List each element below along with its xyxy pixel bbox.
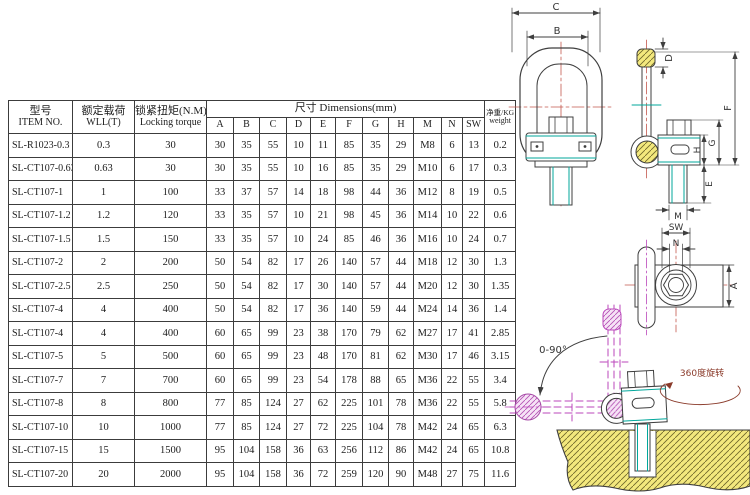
pivot-pin-section xyxy=(636,141,658,163)
table-cell: 63 xyxy=(311,439,336,463)
table-cell: 170 xyxy=(336,322,363,346)
col-header-dim-m: M xyxy=(414,118,442,134)
table-cell: 48 xyxy=(311,345,336,369)
table-cell: 250 xyxy=(135,275,207,299)
table-cell: 21 xyxy=(311,204,336,228)
table-cell: SL-CT107-8 xyxy=(9,392,73,416)
table-cell: 14 xyxy=(287,181,311,205)
table-cell: 5 xyxy=(73,345,135,369)
col-header-dim-a: A xyxy=(207,118,234,134)
spec-table-body: SL-R1023-0.30.3303035551011853529M86130.… xyxy=(9,134,516,487)
table-cell: 99 xyxy=(260,369,287,393)
table-row: SL-CT107-2220050548217261405744M1812301.… xyxy=(9,251,516,275)
table-cell: M8 xyxy=(414,134,442,158)
table-cell: 1 xyxy=(73,181,135,205)
table-cell: 4 xyxy=(73,298,135,322)
table-cell: 57 xyxy=(363,275,389,299)
table-cell: 77 xyxy=(207,392,234,416)
table-cell: 700 xyxy=(135,369,207,393)
table-cell: 17 xyxy=(442,345,463,369)
table-row: SL-CT107-4440050548217361405944M2414361.… xyxy=(9,298,516,322)
table-cell: 30 xyxy=(135,134,207,158)
table-cell: 33 xyxy=(207,204,234,228)
table-cell: 10 xyxy=(442,228,463,252)
table-cell: 37 xyxy=(234,181,260,205)
catalog-page: 型号 ITEM NO. 额定载荷 WLL(T) 锁紧扭矩(N.M) Lockin… xyxy=(0,0,750,495)
dim-label-d: D xyxy=(664,54,675,62)
table-cell: 65 xyxy=(234,369,260,393)
col-header-dim-c: C xyxy=(260,118,287,134)
table-cell: 82 xyxy=(260,275,287,299)
table-cell: 85 xyxy=(234,416,260,440)
table-cell: SL-CT107-1 xyxy=(9,181,73,205)
table-cell: 22 xyxy=(463,204,485,228)
table-cell: 60 xyxy=(207,345,234,369)
table-cell: 65 xyxy=(234,322,260,346)
table-row: SL-CT107-7770060659923541788865M3622553.… xyxy=(9,369,516,393)
table-cell: 27 xyxy=(287,392,311,416)
table-cell: SL-CT107-1.5 xyxy=(9,228,73,252)
table-cell: 98 xyxy=(336,181,363,205)
table-cell: 36 xyxy=(287,463,311,487)
table-cell: M36 xyxy=(414,392,442,416)
table-cell: 400 xyxy=(135,322,207,346)
table-cell: M24 xyxy=(414,298,442,322)
table-cell: 800 xyxy=(135,392,207,416)
table-cell: SL-CT107-0.63 xyxy=(9,157,73,181)
table-cell: 60 xyxy=(207,322,234,346)
table-cell: 19 xyxy=(463,181,485,205)
table-cell: 82 xyxy=(260,251,287,275)
table-cell: 62 xyxy=(389,322,414,346)
table-cell: 10 xyxy=(287,134,311,158)
table-cell: 140 xyxy=(336,275,363,299)
table-cell: 55 xyxy=(463,392,485,416)
col-header-wll-en: WLL(T) xyxy=(73,118,134,129)
table-cell: 44 xyxy=(389,251,414,275)
ring-bar-section xyxy=(637,49,655,67)
table-row: SL-CT107-1515150095104158366325611286M42… xyxy=(9,439,516,463)
table-cell: 88 xyxy=(363,369,389,393)
technical-drawing: C B xyxy=(495,0,750,495)
table-row: SL-CT107-1.51.51503335571024854636M16102… xyxy=(9,228,516,252)
table-cell: 24 xyxy=(442,439,463,463)
table-row: SL-CT107-1.21.21203335571021984536M14102… xyxy=(9,204,516,228)
table-cell: M27 xyxy=(414,322,442,346)
rotation-label: 360度旋转 xyxy=(680,367,724,379)
table-row: SL-CT107-888007785124276222510178M362255… xyxy=(9,392,516,416)
col-header-torque-en: Locking torque xyxy=(135,118,206,129)
table-cell: 27 xyxy=(442,463,463,487)
table-cell: 35 xyxy=(234,204,260,228)
lock-pin xyxy=(671,145,689,154)
nut xyxy=(628,370,655,387)
table-cell: 54 xyxy=(234,298,260,322)
table-cell: 36 xyxy=(389,228,414,252)
table-cell: 78 xyxy=(389,392,414,416)
table-cell: 124 xyxy=(260,416,287,440)
dim-label-h: H xyxy=(693,147,703,154)
table-cell: 46 xyxy=(463,345,485,369)
col-header-dim-f: F xyxy=(336,118,363,134)
table-cell: 10 xyxy=(287,204,311,228)
table-cell: 50 xyxy=(207,275,234,299)
washer xyxy=(535,161,587,167)
table-cell: SL-CT107-2.5 xyxy=(9,275,73,299)
table-cell: 225 xyxy=(336,416,363,440)
table-cell: 30 xyxy=(207,134,234,158)
table-cell: 50 xyxy=(207,298,234,322)
table-row: SL-CT107-0.630.63303035551016853529M1061… xyxy=(9,157,516,181)
table-cell: 57 xyxy=(260,228,287,252)
table-row: SL-CT107-4440060659923381707962M2717412.… xyxy=(9,322,516,346)
dim-label-f: F xyxy=(723,105,734,111)
table-cell: M10 xyxy=(414,157,442,181)
table-cell: 27 xyxy=(287,416,311,440)
table-cell: 170 xyxy=(336,345,363,369)
dim-label-b: B xyxy=(554,26,561,37)
table-cell: 104 xyxy=(363,416,389,440)
table-cell: 29 xyxy=(389,134,414,158)
table-row: SL-CT107-2.52.525050548217301405744M2012… xyxy=(9,275,516,299)
nut xyxy=(667,120,691,135)
col-header-dim-b: B xyxy=(234,118,260,134)
table-cell: M20 xyxy=(414,275,442,299)
dim-label-m: M xyxy=(674,212,682,222)
table-cell: 38 xyxy=(311,322,336,346)
table-cell: M42 xyxy=(414,439,442,463)
table-cell: 10 xyxy=(287,228,311,252)
table-cell: 26 xyxy=(311,251,336,275)
side-view-drawing: D H E G F M xyxy=(631,38,739,222)
table-cell: 65 xyxy=(463,416,485,440)
col-header-item-en: ITEM NO. xyxy=(9,118,72,129)
table-cell: 54 xyxy=(311,369,336,393)
table-cell: 17 xyxy=(287,251,311,275)
table-cell: 45 xyxy=(363,204,389,228)
table-cell: 81 xyxy=(363,345,389,369)
table-cell: 65 xyxy=(389,369,414,393)
table-cell: 2000 xyxy=(135,463,207,487)
table-cell: SL-CT107-1.2 xyxy=(9,204,73,228)
table-cell: 55 xyxy=(260,157,287,181)
table-cell: 120 xyxy=(135,204,207,228)
table-cell: 1.2 xyxy=(73,204,135,228)
table-cell: 98 xyxy=(336,204,363,228)
table-cell: 17 xyxy=(442,322,463,346)
table-cell: 85 xyxy=(336,157,363,181)
table-cell: 55 xyxy=(463,369,485,393)
table-cell: SL-CT107-2 xyxy=(9,251,73,275)
table-cell: M16 xyxy=(414,228,442,252)
table-cell: 30 xyxy=(207,157,234,181)
dim-label-sw: SW xyxy=(669,223,684,233)
table-cell: 8 xyxy=(442,181,463,205)
col-header-torque: 锁紧扭矩(N.M) Locking torque xyxy=(135,101,207,134)
front-view-drawing: C B xyxy=(509,2,613,206)
table-cell: 62 xyxy=(311,392,336,416)
table-cell: 0.63 xyxy=(73,157,135,181)
table-cell: 1000 xyxy=(135,416,207,440)
table-cell: 99 xyxy=(260,322,287,346)
table-cell: 11 xyxy=(311,134,336,158)
table-cell: 22 xyxy=(442,369,463,393)
table-cell: 77 xyxy=(207,416,234,440)
table-cell: 178 xyxy=(336,369,363,393)
dim-label-e: E xyxy=(705,181,715,187)
table-cell: 85 xyxy=(336,228,363,252)
table-cell: 54 xyxy=(234,251,260,275)
table-cell: SL-R1023-0.3 xyxy=(9,134,73,158)
table-cell: 124 xyxy=(260,392,287,416)
table-cell: 10 xyxy=(287,157,311,181)
table-cell: 44 xyxy=(363,181,389,205)
table-cell: 33 xyxy=(207,228,234,252)
table-cell: 6 xyxy=(442,157,463,181)
dim-label-g: G xyxy=(708,139,718,146)
table-cell: 59 xyxy=(363,298,389,322)
table-cell: 12 xyxy=(442,275,463,299)
table-cell: SL-CT107-15 xyxy=(9,439,73,463)
table-cell: 15 xyxy=(73,439,135,463)
table-cell: 17 xyxy=(287,298,311,322)
table-cell: 57 xyxy=(363,251,389,275)
hoist-ring-body xyxy=(600,370,668,425)
phantom-ring-tip-vertical xyxy=(603,309,621,330)
table-cell: 72 xyxy=(311,463,336,487)
table-cell: M42 xyxy=(414,416,442,440)
bushing-circle xyxy=(656,265,697,306)
table-cell: 120 xyxy=(363,463,389,487)
table-cell: 72 xyxy=(311,416,336,440)
col-header-dim-e: E xyxy=(311,118,336,134)
table-cell: SL-CT107-7 xyxy=(9,369,73,393)
table-cell: M30 xyxy=(414,345,442,369)
table-cell: 400 xyxy=(135,298,207,322)
col-header-item: 型号 ITEM NO. xyxy=(9,101,73,134)
swing-range-label: 0-90° xyxy=(539,345,567,356)
table-cell: 140 xyxy=(336,251,363,275)
table-cell: 50 xyxy=(207,251,234,275)
table-cell: 259 xyxy=(336,463,363,487)
table-cell: 30 xyxy=(311,275,336,299)
col-header-dim-d: D xyxy=(287,118,311,134)
table-cell: 46 xyxy=(363,228,389,252)
table-cell: 86 xyxy=(389,439,414,463)
table-cell: 10 xyxy=(442,204,463,228)
table-cell: 65 xyxy=(463,439,485,463)
table-cell: SL-CT107-20 xyxy=(9,463,73,487)
table-row: SL-CT107-2020200095104158367225912090M48… xyxy=(9,463,516,487)
table-cell: 4 xyxy=(73,322,135,346)
table-cell: 79 xyxy=(363,322,389,346)
table-cell: 85 xyxy=(234,392,260,416)
table-cell: 12 xyxy=(442,251,463,275)
table-cell: 35 xyxy=(363,134,389,158)
table-cell: 23 xyxy=(287,345,311,369)
table-cell: SL-CT107-4 xyxy=(9,322,73,346)
table-cell: 44 xyxy=(389,298,414,322)
dim-label-n: N xyxy=(673,239,680,249)
table-cell: 29 xyxy=(389,157,414,181)
col-header-dim-g: G xyxy=(363,118,389,134)
table-cell: 57 xyxy=(260,204,287,228)
table-cell: 100 xyxy=(135,181,207,205)
table-cell: 150 xyxy=(135,228,207,252)
table-cell: 54 xyxy=(234,275,260,299)
table-cell: 41 xyxy=(463,322,485,346)
spec-table: 型号 ITEM NO. 额定载荷 WLL(T) 锁紧扭矩(N.M) Lockin… xyxy=(8,100,516,487)
rotation-ellipse-arrow xyxy=(660,384,740,405)
table-cell: 500 xyxy=(135,345,207,369)
table-cell: 158 xyxy=(260,439,287,463)
table-cell: 55 xyxy=(260,134,287,158)
installed-view-drawing: 0-90° 360度旋转 xyxy=(505,305,750,491)
col-header-dim-n: N xyxy=(442,118,463,134)
table-cell: 14 xyxy=(442,298,463,322)
col-header-wll: 额定载荷 WLL(T) xyxy=(73,101,135,134)
table-cell: 36 xyxy=(463,298,485,322)
table-cell: 101 xyxy=(363,392,389,416)
table-cell: 140 xyxy=(336,298,363,322)
table-cell: 35 xyxy=(234,134,260,158)
table-cell: 36 xyxy=(287,439,311,463)
table-cell: 104 xyxy=(234,439,260,463)
table-cell: 30 xyxy=(463,275,485,299)
table-cell: 36 xyxy=(389,204,414,228)
table-cell: 2.5 xyxy=(73,275,135,299)
table-cell: 99 xyxy=(260,345,287,369)
top-view-drawing: SW N A xyxy=(625,223,740,335)
col-header-wll-cn: 额定载荷 xyxy=(73,106,134,118)
table-cell: 75 xyxy=(463,463,485,487)
table-cell: 44 xyxy=(389,275,414,299)
table-cell: M48 xyxy=(414,463,442,487)
nut xyxy=(549,117,573,133)
table-cell: 36 xyxy=(389,181,414,205)
table-cell: 8 xyxy=(73,392,135,416)
table-cell: 62 xyxy=(389,345,414,369)
table-cell: 22 xyxy=(442,392,463,416)
table-cell: 0.3 xyxy=(73,134,135,158)
table-cell: 24 xyxy=(463,228,485,252)
table-cell: 35 xyxy=(234,228,260,252)
dim-label-a: A xyxy=(729,282,740,289)
table-cell: 24 xyxy=(442,416,463,440)
dim-label-c: C xyxy=(553,2,560,13)
table-cell: 65 xyxy=(234,345,260,369)
table-cell: 82 xyxy=(260,298,287,322)
table-cell: 7 xyxy=(73,369,135,393)
table-cell: 95 xyxy=(207,439,234,463)
table-cell: 23 xyxy=(287,369,311,393)
table-cell: M14 xyxy=(414,204,442,228)
table-cell: 30 xyxy=(463,251,485,275)
table-cell: 225 xyxy=(336,392,363,416)
table-cell: M18 xyxy=(414,251,442,275)
table-cell: 95 xyxy=(207,463,234,487)
col-header-dimensions: 尺寸 Dimensions(mm) xyxy=(207,101,485,118)
col-header-item-cn: 型号 xyxy=(9,106,72,118)
table-row: SL-CT107-111003337571418984436M128190.5 xyxy=(9,181,516,205)
table-cell: 200 xyxy=(135,251,207,275)
table-cell: 6 xyxy=(442,134,463,158)
col-header-dim-h: H xyxy=(389,118,414,134)
lock-pin xyxy=(632,397,654,408)
table-cell: 1500 xyxy=(135,439,207,463)
table-cell: 18 xyxy=(311,181,336,205)
table-cell: 17 xyxy=(463,157,485,181)
table-cell: 78 xyxy=(389,416,414,440)
table-cell: 17 xyxy=(287,275,311,299)
table-cell: 158 xyxy=(260,463,287,487)
table-cell: 23 xyxy=(287,322,311,346)
table-cell: 35 xyxy=(363,157,389,181)
table-cell: 20 xyxy=(73,463,135,487)
table-cell: 30 xyxy=(135,157,207,181)
table-cell: 90 xyxy=(389,463,414,487)
table-cell: 13 xyxy=(463,134,485,158)
table-cell: 2 xyxy=(73,251,135,275)
table-cell: 10 xyxy=(73,416,135,440)
table-cell: M36 xyxy=(414,369,442,393)
table-cell: 85 xyxy=(336,134,363,158)
table-cell: 256 xyxy=(336,439,363,463)
table-cell: SL-CT107-5 xyxy=(9,345,73,369)
table-row: SL-CT107-101010007785124277222510478M422… xyxy=(9,416,516,440)
table-row: SL-R1023-0.30.3303035551011853529M86130.… xyxy=(9,134,516,158)
table-row: SL-CT107-5550060659923481708162M3017463.… xyxy=(9,345,516,369)
table-cell: 57 xyxy=(260,181,287,205)
table-cell: 24 xyxy=(311,228,336,252)
table-cell: 60 xyxy=(207,369,234,393)
table-cell: 112 xyxy=(363,439,389,463)
table-cell: 1.5 xyxy=(73,228,135,252)
table-cell: SL-CT107-10 xyxy=(9,416,73,440)
col-header-dim-sw: SW xyxy=(463,118,485,134)
table-cell: 16 xyxy=(311,157,336,181)
table-cell: 33 xyxy=(207,181,234,205)
table-cell: M12 xyxy=(414,181,442,205)
table-cell: 104 xyxy=(234,463,260,487)
table-cell: 35 xyxy=(234,157,260,181)
col-header-torque-cn: 锁紧扭矩(N.M) xyxy=(135,106,206,118)
table-cell: 36 xyxy=(311,298,336,322)
table-cell: SL-CT107-4 xyxy=(9,298,73,322)
